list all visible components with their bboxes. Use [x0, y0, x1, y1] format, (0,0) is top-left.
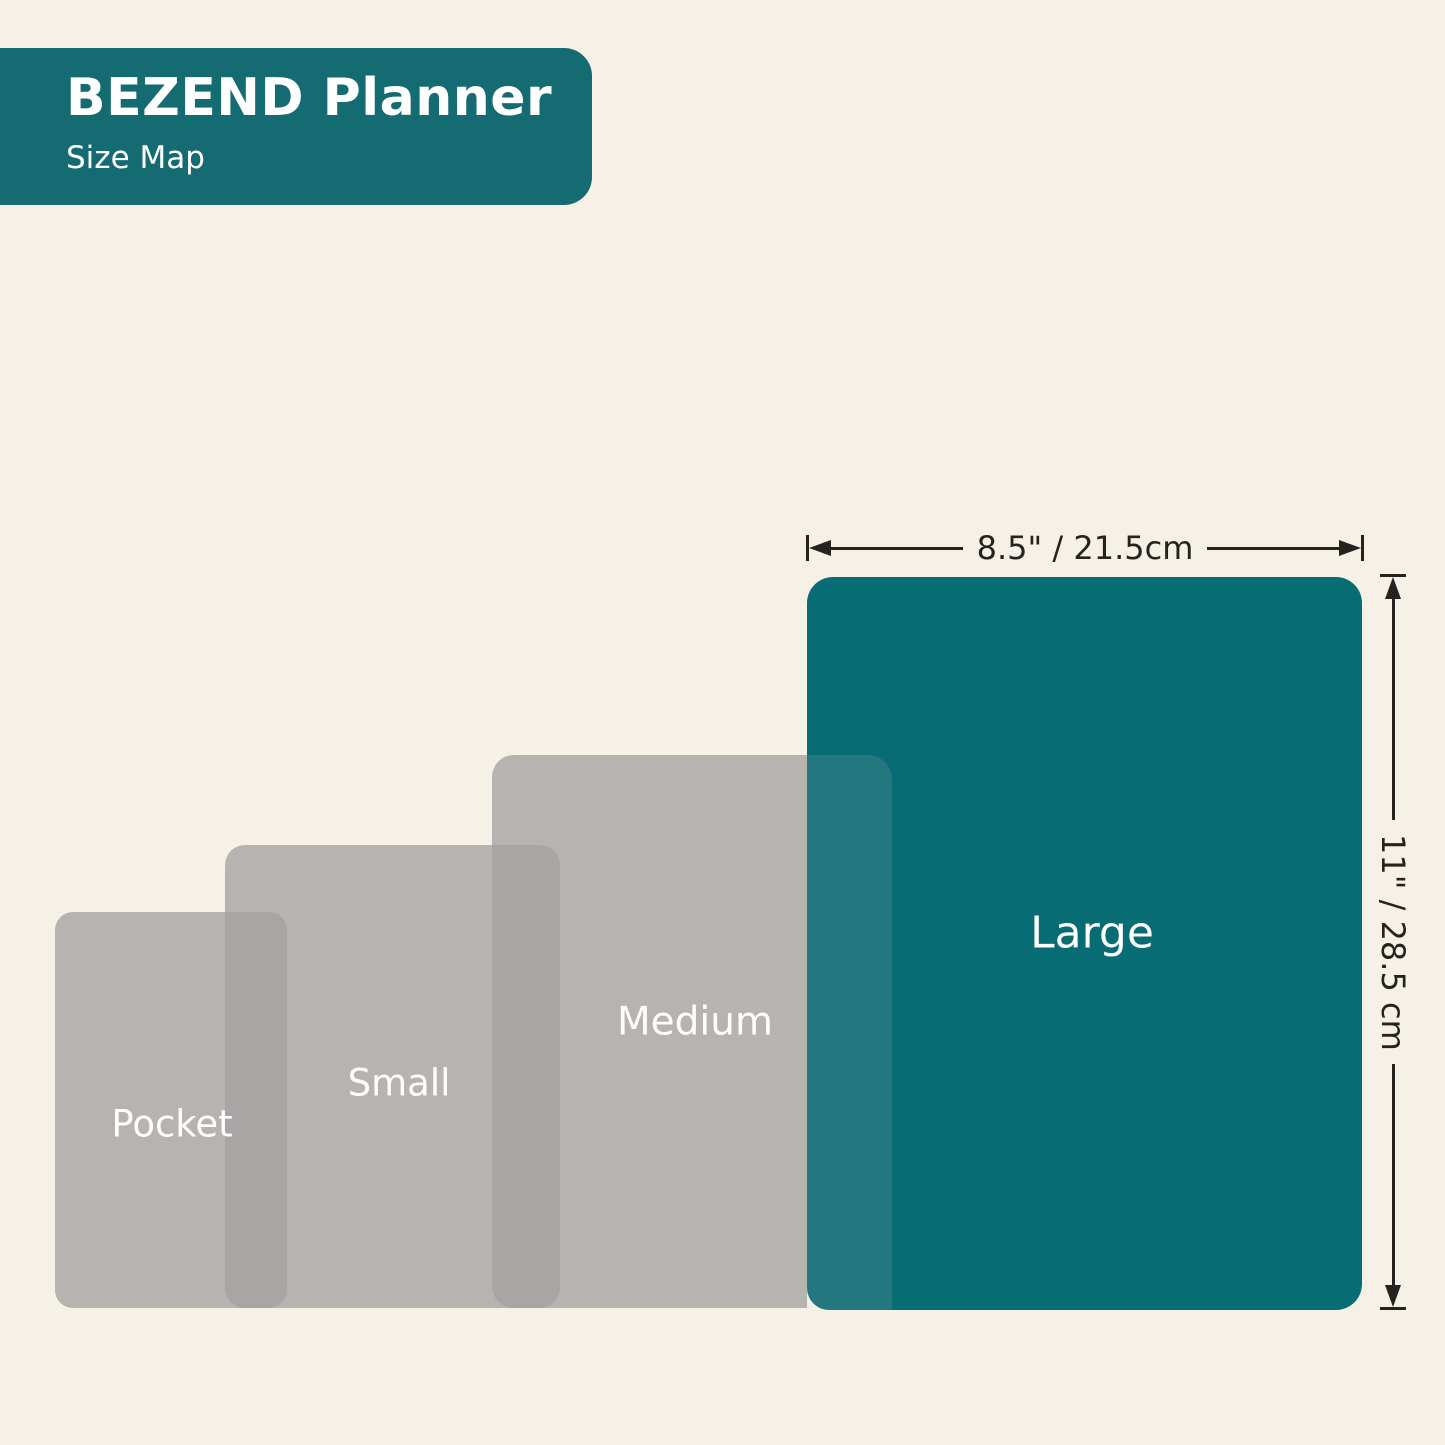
- dimension-line: [1207, 547, 1339, 550]
- size-label-medium: Medium: [617, 1000, 773, 1045]
- size-label-pocket: Pocket: [111, 1103, 232, 1146]
- dimension-end-tick: [1380, 1307, 1406, 1310]
- height-dimension-label: 11" / 28.5 cm: [1374, 820, 1412, 1065]
- dimension-line: [831, 547, 963, 550]
- size-label-large: Large: [1030, 908, 1154, 959]
- header-card: BEZEND Planner Size Map: [0, 48, 592, 205]
- size-map-canvas: BEZEND Planner Size Map Pocket Small Med…: [0, 0, 1445, 1445]
- medium-over-large-overlap: [807, 755, 892, 1310]
- width-dimension-label: 8.5" / 21.5cm: [963, 529, 1208, 567]
- arrow-right-icon: [1339, 540, 1361, 556]
- dimension-line: [1392, 1064, 1395, 1285]
- arrow-left-icon: [809, 540, 831, 556]
- height-dimension: 11" / 28.5 cm: [1376, 574, 1410, 1310]
- dimension-line: [1392, 599, 1395, 820]
- arrow-up-icon: [1385, 577, 1401, 599]
- size-label-small: Small: [348, 1062, 451, 1105]
- page-title: BEZEND Planner: [66, 72, 592, 124]
- width-dimension: 8.5" / 21.5cm: [806, 530, 1364, 566]
- dimension-end-tick: [1361, 535, 1364, 561]
- arrow-down-icon: [1385, 1285, 1401, 1307]
- page-subtitle: Size Map: [66, 140, 592, 176]
